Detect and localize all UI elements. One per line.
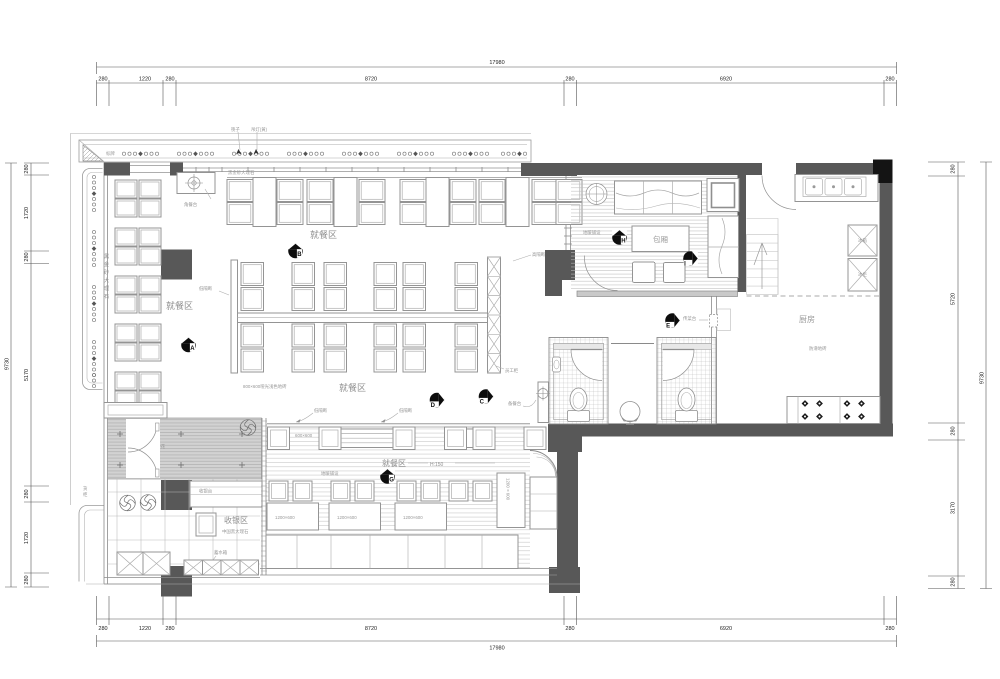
svg-text:就餐区: 就餐区 — [310, 229, 337, 240]
svg-text:3170: 3170 — [951, 502, 957, 514]
svg-text:理: 理 — [104, 285, 110, 292]
svg-text:9730: 9730 — [980, 372, 986, 384]
svg-text:280: 280 — [885, 626, 894, 632]
svg-text:角餐台: 角餐台 — [184, 201, 198, 208]
svg-text:8720: 8720 — [365, 77, 377, 83]
svg-text:1200×600: 1200×600 — [506, 478, 511, 501]
svg-text:5170: 5170 — [24, 369, 30, 381]
svg-text:280: 280 — [98, 77, 107, 83]
svg-text:600×600: 600×600 — [295, 433, 313, 438]
svg-text:D: D — [431, 403, 436, 409]
svg-text:标牌: 标牌 — [106, 150, 115, 157]
svg-text:8720: 8720 — [365, 626, 377, 632]
svg-text:1720: 1720 — [24, 207, 30, 219]
svg-text:就餐区: 就餐区 — [382, 458, 406, 468]
svg-text:厨房: 厨房 — [799, 314, 815, 324]
svg-text:5720: 5720 — [951, 293, 957, 305]
svg-text:筷子: 筷子 — [231, 126, 240, 133]
svg-text:黑: 黑 — [104, 253, 109, 260]
svg-text:17980: 17980 — [489, 60, 504, 66]
svg-text:低隔断: 低隔断 — [314, 407, 328, 414]
svg-text:280: 280 — [24, 252, 30, 261]
svg-text:280: 280 — [885, 77, 894, 83]
svg-text:货: 货 — [83, 485, 88, 492]
svg-text:大: 大 — [104, 276, 109, 284]
svg-text:冰箱: 冰箱 — [858, 237, 867, 244]
svg-text:280: 280 — [165, 626, 174, 632]
svg-text:收银区: 收银区 — [224, 515, 248, 525]
svg-text:280: 280 — [24, 575, 30, 584]
svg-text:黑金砂大理石: 黑金砂大理石 — [228, 169, 255, 176]
svg-text:A: A — [190, 346, 195, 352]
svg-text:B: B — [297, 252, 302, 258]
svg-text:蓄水箱: 蓄水箱 — [214, 549, 228, 556]
svg-text:280: 280 — [951, 426, 957, 435]
svg-text:传菜台: 传菜台 — [683, 315, 697, 322]
svg-text:1720: 1720 — [24, 532, 30, 544]
svg-text:吊灯(黄): 吊灯(黄) — [251, 126, 268, 133]
svg-text:冰柜: 冰柜 — [858, 271, 867, 278]
svg-text:金: 金 — [104, 260, 110, 268]
svg-text:17980: 17980 — [489, 646, 504, 652]
svg-text:1200×600: 1200×600 — [403, 515, 423, 520]
svg-text:石: 石 — [104, 293, 109, 300]
svg-text:地暖铺设: 地暖铺设 — [583, 229, 601, 236]
svg-text:砂: 砂 — [104, 268, 109, 276]
svg-text:E: E — [666, 323, 670, 329]
svg-text:收银台: 收银台 — [199, 488, 213, 495]
svg-text:280: 280 — [165, 77, 174, 83]
svg-text:H: H — [621, 239, 625, 245]
svg-text:G: G — [389, 478, 394, 484]
svg-text:9730: 9730 — [5, 358, 11, 370]
svg-text:1200×600: 1200×600 — [275, 515, 295, 520]
svg-text:280: 280 — [951, 577, 957, 586]
svg-text:1200×600: 1200×600 — [337, 515, 357, 520]
svg-text:低隔断: 低隔断 — [199, 285, 213, 292]
svg-text:280: 280 — [24, 489, 30, 498]
svg-text:1220: 1220 — [139, 626, 151, 632]
svg-text:备餐台: 备餐台 — [508, 400, 522, 407]
svg-text:高隔断: 高隔断 — [532, 251, 546, 258]
svg-text:280: 280 — [565, 626, 574, 632]
svg-text:H:150: H:150 — [430, 462, 444, 468]
svg-text:低隔断: 低隔断 — [399, 407, 413, 414]
svg-text:280: 280 — [98, 626, 107, 632]
svg-text:280: 280 — [24, 164, 30, 173]
svg-text:就餐区: 就餐区 — [166, 300, 193, 311]
svg-text:中国黑大理石: 中国黑大理石 — [222, 528, 249, 535]
svg-text:800×600哑光浅色地砖: 800×600哑光浅色地砖 — [243, 383, 287, 390]
svg-text:280: 280 — [951, 164, 957, 173]
svg-text:包厢: 包厢 — [653, 234, 668, 244]
svg-text:员工柜: 员工柜 — [505, 367, 519, 374]
svg-text:防滑地砖: 防滑地砖 — [809, 345, 827, 352]
svg-text:280: 280 — [565, 77, 574, 83]
svg-text:6920: 6920 — [720, 77, 732, 83]
svg-text:柜: 柜 — [83, 491, 88, 498]
svg-text:就餐区: 就餐区 — [339, 382, 366, 393]
svg-text:C: C — [480, 399, 485, 405]
svg-text:6920: 6920 — [720, 626, 732, 632]
svg-text:地暖铺设: 地暖铺设 — [321, 470, 339, 477]
svg-text:1220: 1220 — [139, 77, 151, 83]
